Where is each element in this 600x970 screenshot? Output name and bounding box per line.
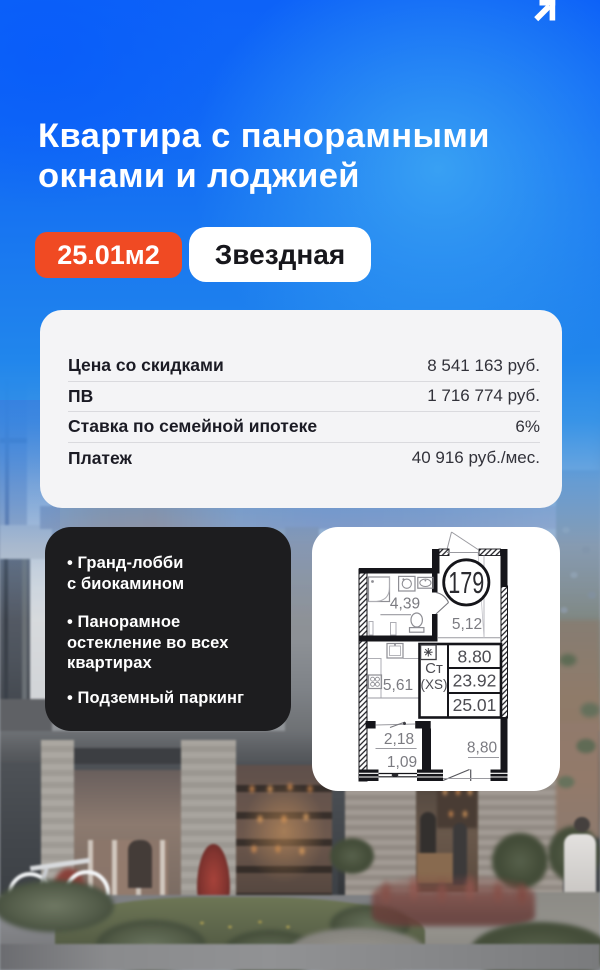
svg-text:Ст: Ст (425, 660, 443, 677)
svg-text:4,39: 4,39 (390, 596, 420, 613)
svg-text:5,12: 5,12 (452, 616, 482, 633)
svg-text:179: 179 (448, 566, 484, 600)
svg-text:8.80: 8.80 (457, 647, 491, 667)
svg-text:8,80: 8,80 (467, 740, 498, 757)
svg-text:2,18: 2,18 (384, 731, 414, 748)
svg-text:25.01: 25.01 (453, 695, 497, 715)
svg-text:1,09: 1,09 (387, 754, 417, 771)
svg-text:5,61: 5,61 (383, 677, 413, 694)
svg-text:23.92: 23.92 (453, 671, 497, 691)
svg-text:(XS): (XS) (421, 677, 448, 692)
